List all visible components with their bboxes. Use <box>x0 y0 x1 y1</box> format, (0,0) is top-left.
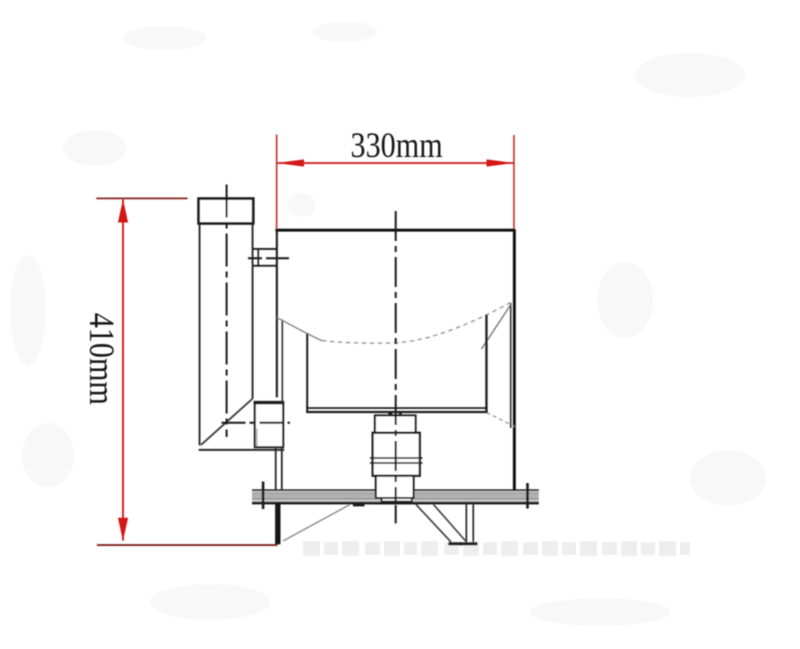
svg-text:410mm: 410mm <box>81 313 120 406</box>
svg-text:330mm: 330mm <box>351 127 444 166</box>
